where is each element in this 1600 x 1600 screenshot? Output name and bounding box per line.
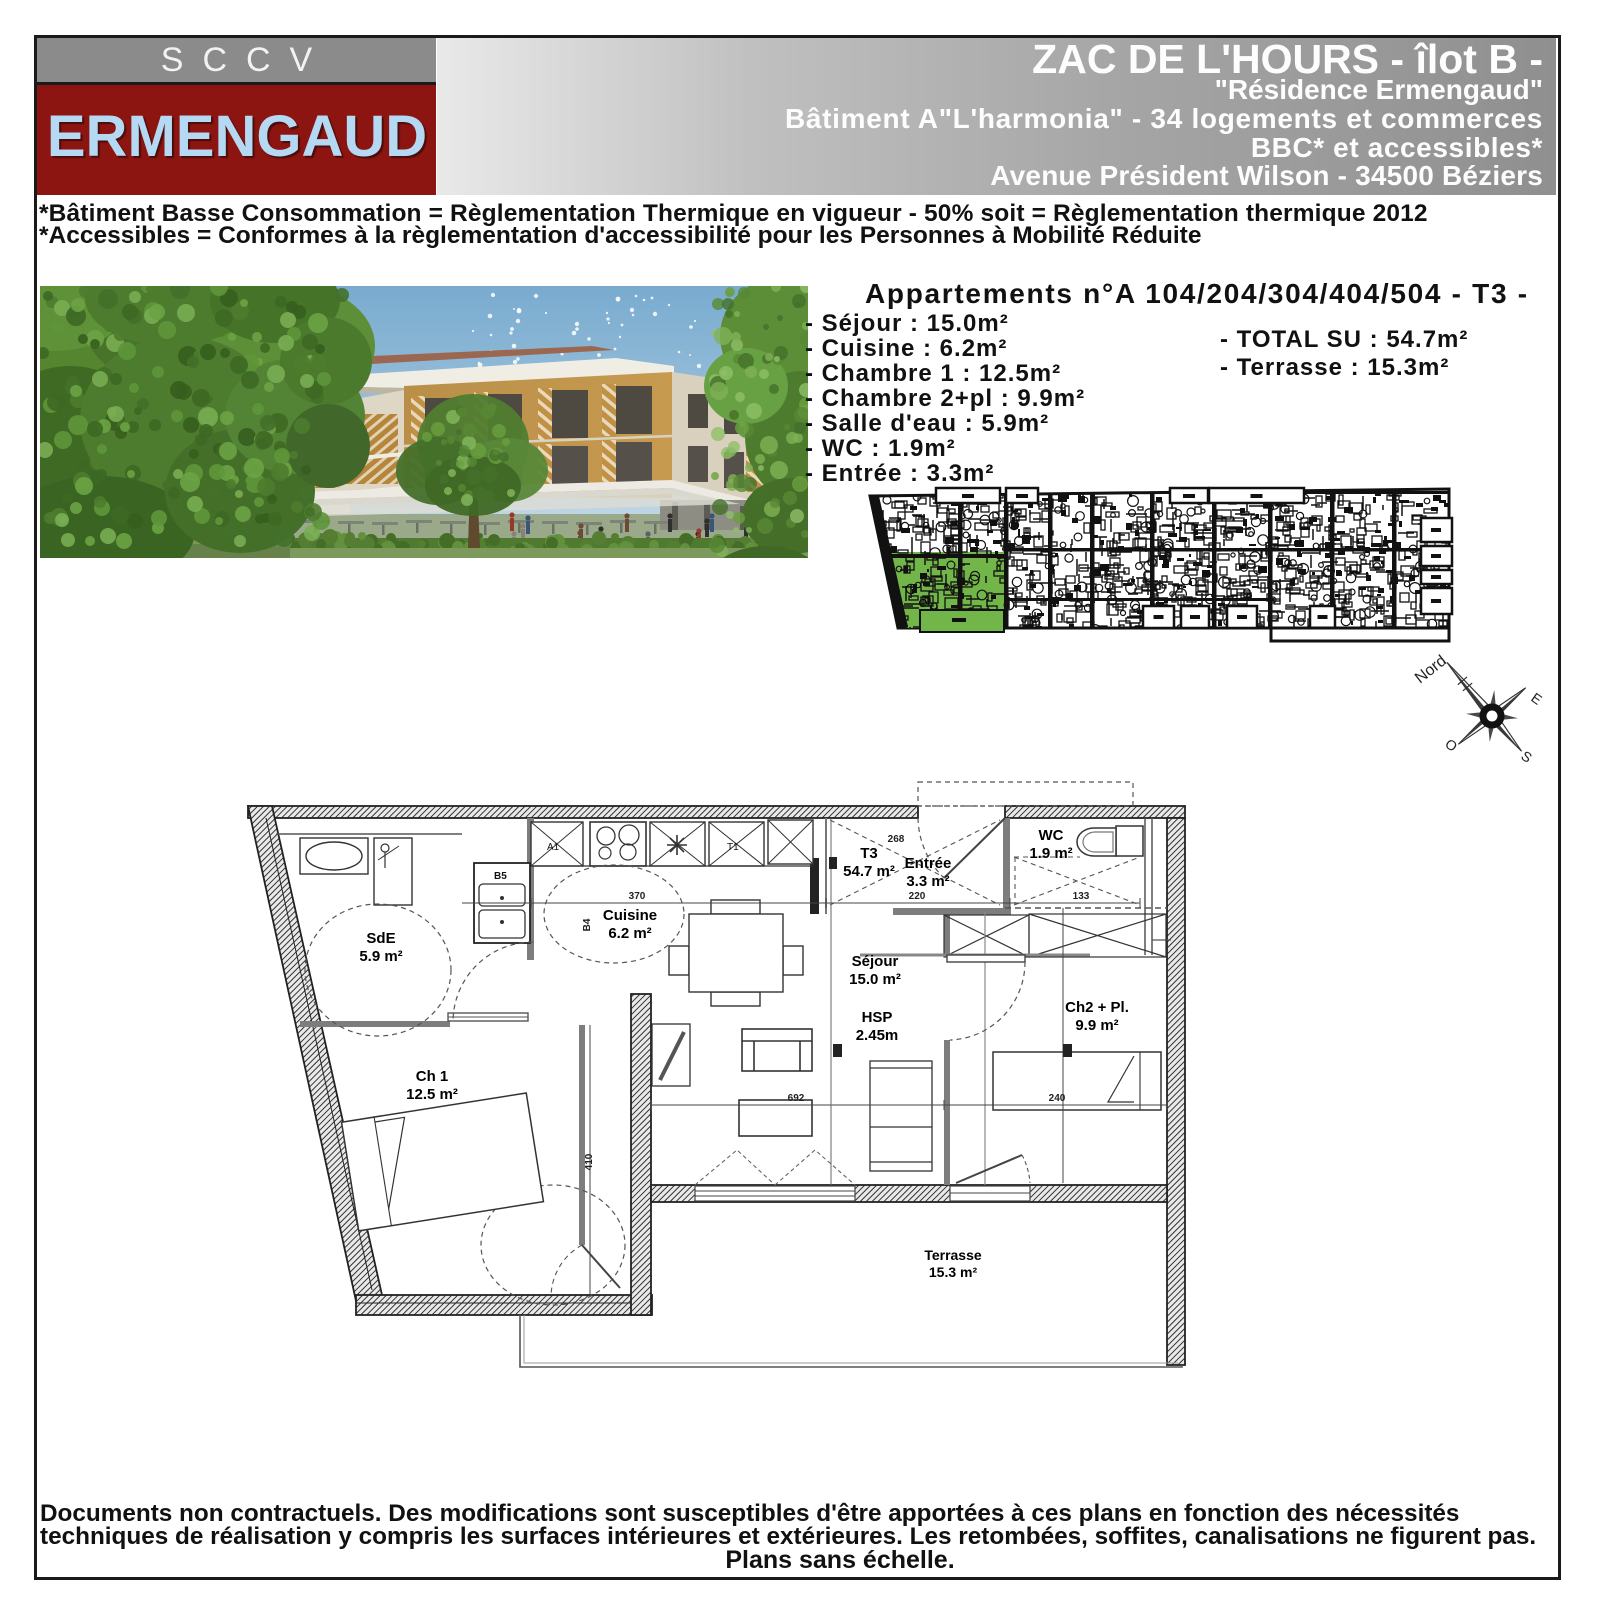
svg-text:268: 268 bbox=[888, 834, 905, 845]
svg-text:133: 133 bbox=[1073, 891, 1090, 902]
svg-text:Terrasse: Terrasse bbox=[924, 1247, 982, 1263]
svg-text:5.9 m²: 5.9 m² bbox=[359, 948, 402, 965]
svg-text:410: 410 bbox=[584, 1153, 595, 1170]
svg-text:370: 370 bbox=[629, 891, 646, 902]
svg-text:3.3 m²: 3.3 m² bbox=[906, 873, 949, 890]
svg-text:2.45m: 2.45m bbox=[856, 1027, 899, 1044]
svg-text:SdE: SdE bbox=[366, 930, 395, 947]
svg-text:WC: WC bbox=[1039, 827, 1064, 844]
svg-text:1.9 m²: 1.9 m² bbox=[1029, 845, 1072, 862]
svg-text:15.3 m²: 15.3 m² bbox=[929, 1264, 978, 1280]
svg-text:T3: T3 bbox=[860, 845, 878, 862]
svg-text:Cuisine: Cuisine bbox=[603, 907, 657, 924]
svg-text:692: 692 bbox=[788, 1093, 805, 1104]
svg-text:12.5 m²: 12.5 m² bbox=[406, 1086, 458, 1103]
svg-text:6.2 m²: 6.2 m² bbox=[608, 925, 651, 942]
svg-text:A1: A1 bbox=[547, 842, 560, 853]
svg-text:B4: B4 bbox=[582, 918, 593, 931]
svg-text:Ch2 + Pl.: Ch2 + Pl. bbox=[1065, 999, 1129, 1016]
svg-text:220: 220 bbox=[909, 891, 926, 902]
svg-text:Ch 1: Ch 1 bbox=[416, 1068, 449, 1085]
svg-text:9.9 m²: 9.9 m² bbox=[1075, 1017, 1118, 1034]
svg-text:T1: T1 bbox=[727, 842, 739, 853]
svg-text:B5: B5 bbox=[494, 871, 507, 882]
svg-text:HSP: HSP bbox=[862, 1009, 893, 1026]
svg-text:Séjour: Séjour bbox=[852, 953, 899, 970]
svg-text:15.0 m²: 15.0 m² bbox=[849, 971, 901, 988]
svg-text:54.7 m²: 54.7 m² bbox=[843, 863, 895, 880]
svg-text:240: 240 bbox=[1049, 1093, 1066, 1104]
svg-text:Entrée: Entrée bbox=[905, 855, 952, 872]
